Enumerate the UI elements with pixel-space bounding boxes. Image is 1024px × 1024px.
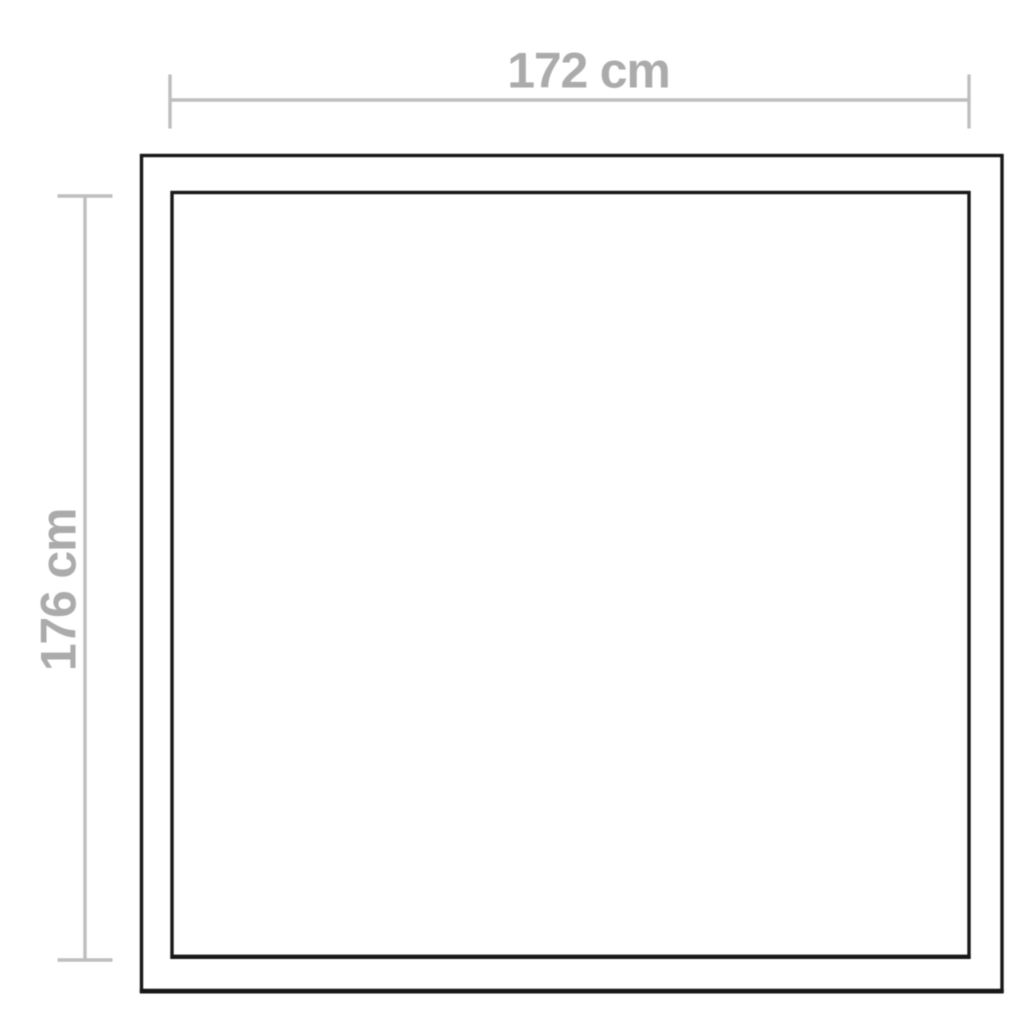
svg-text:176 cm: 176 cm — [31, 509, 87, 671]
svg-text:172 cm: 172 cm — [507, 43, 669, 99]
